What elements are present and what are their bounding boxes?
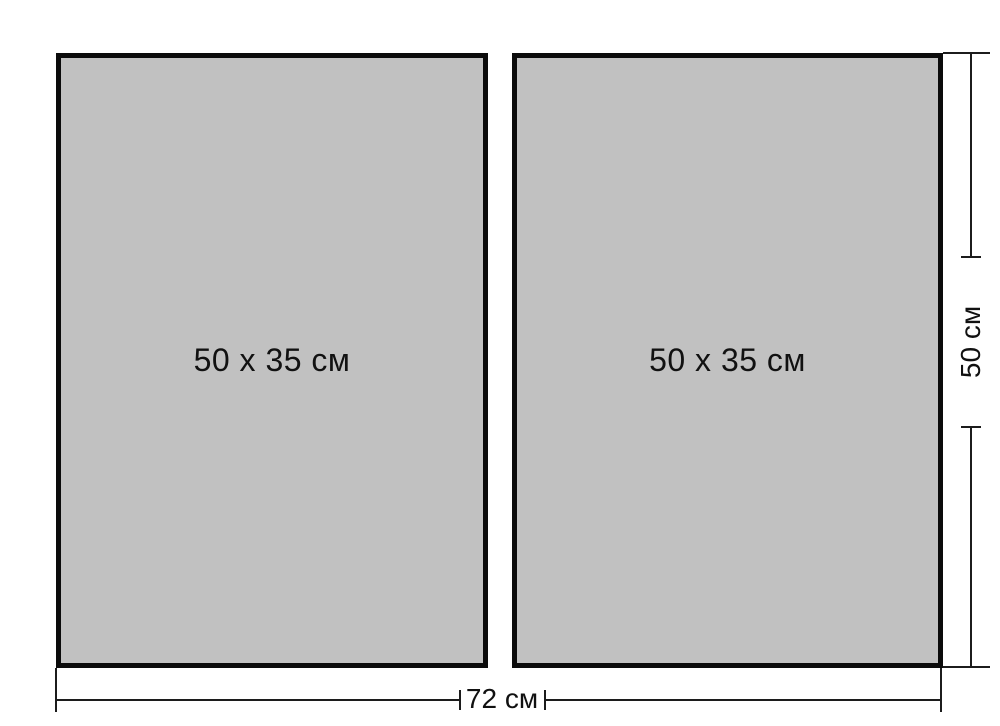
height-dimension-line-bottom-segment: [970, 428, 972, 668]
width-dimension-line-left-segment: [55, 699, 460, 701]
dimension-diagram: 50 x 35 см 50 x 35 см 72 см 50 см: [0, 0, 1000, 726]
height-dimension-label: 50 см: [955, 306, 987, 378]
height-dimension-line-top-segment: [970, 52, 972, 257]
width-dimension-label: 72 см: [466, 683, 538, 715]
width-dimension-tick-left: [459, 690, 461, 710]
panel-left: 50 x 35 см: [56, 53, 488, 668]
panel-right-size-label: 50 x 35 см: [649, 342, 806, 379]
panel-left-size-label: 50 x 35 см: [194, 342, 351, 379]
height-dimension-tick-top: [961, 256, 981, 258]
width-dimension-line-right-segment: [546, 699, 942, 701]
width-extension-line-left: [55, 668, 57, 712]
panel-right: 50 x 35 см: [512, 53, 943, 668]
height-extension-line-top: [943, 52, 990, 54]
width-extension-line-right: [940, 668, 942, 712]
height-extension-line-bottom: [943, 666, 990, 668]
